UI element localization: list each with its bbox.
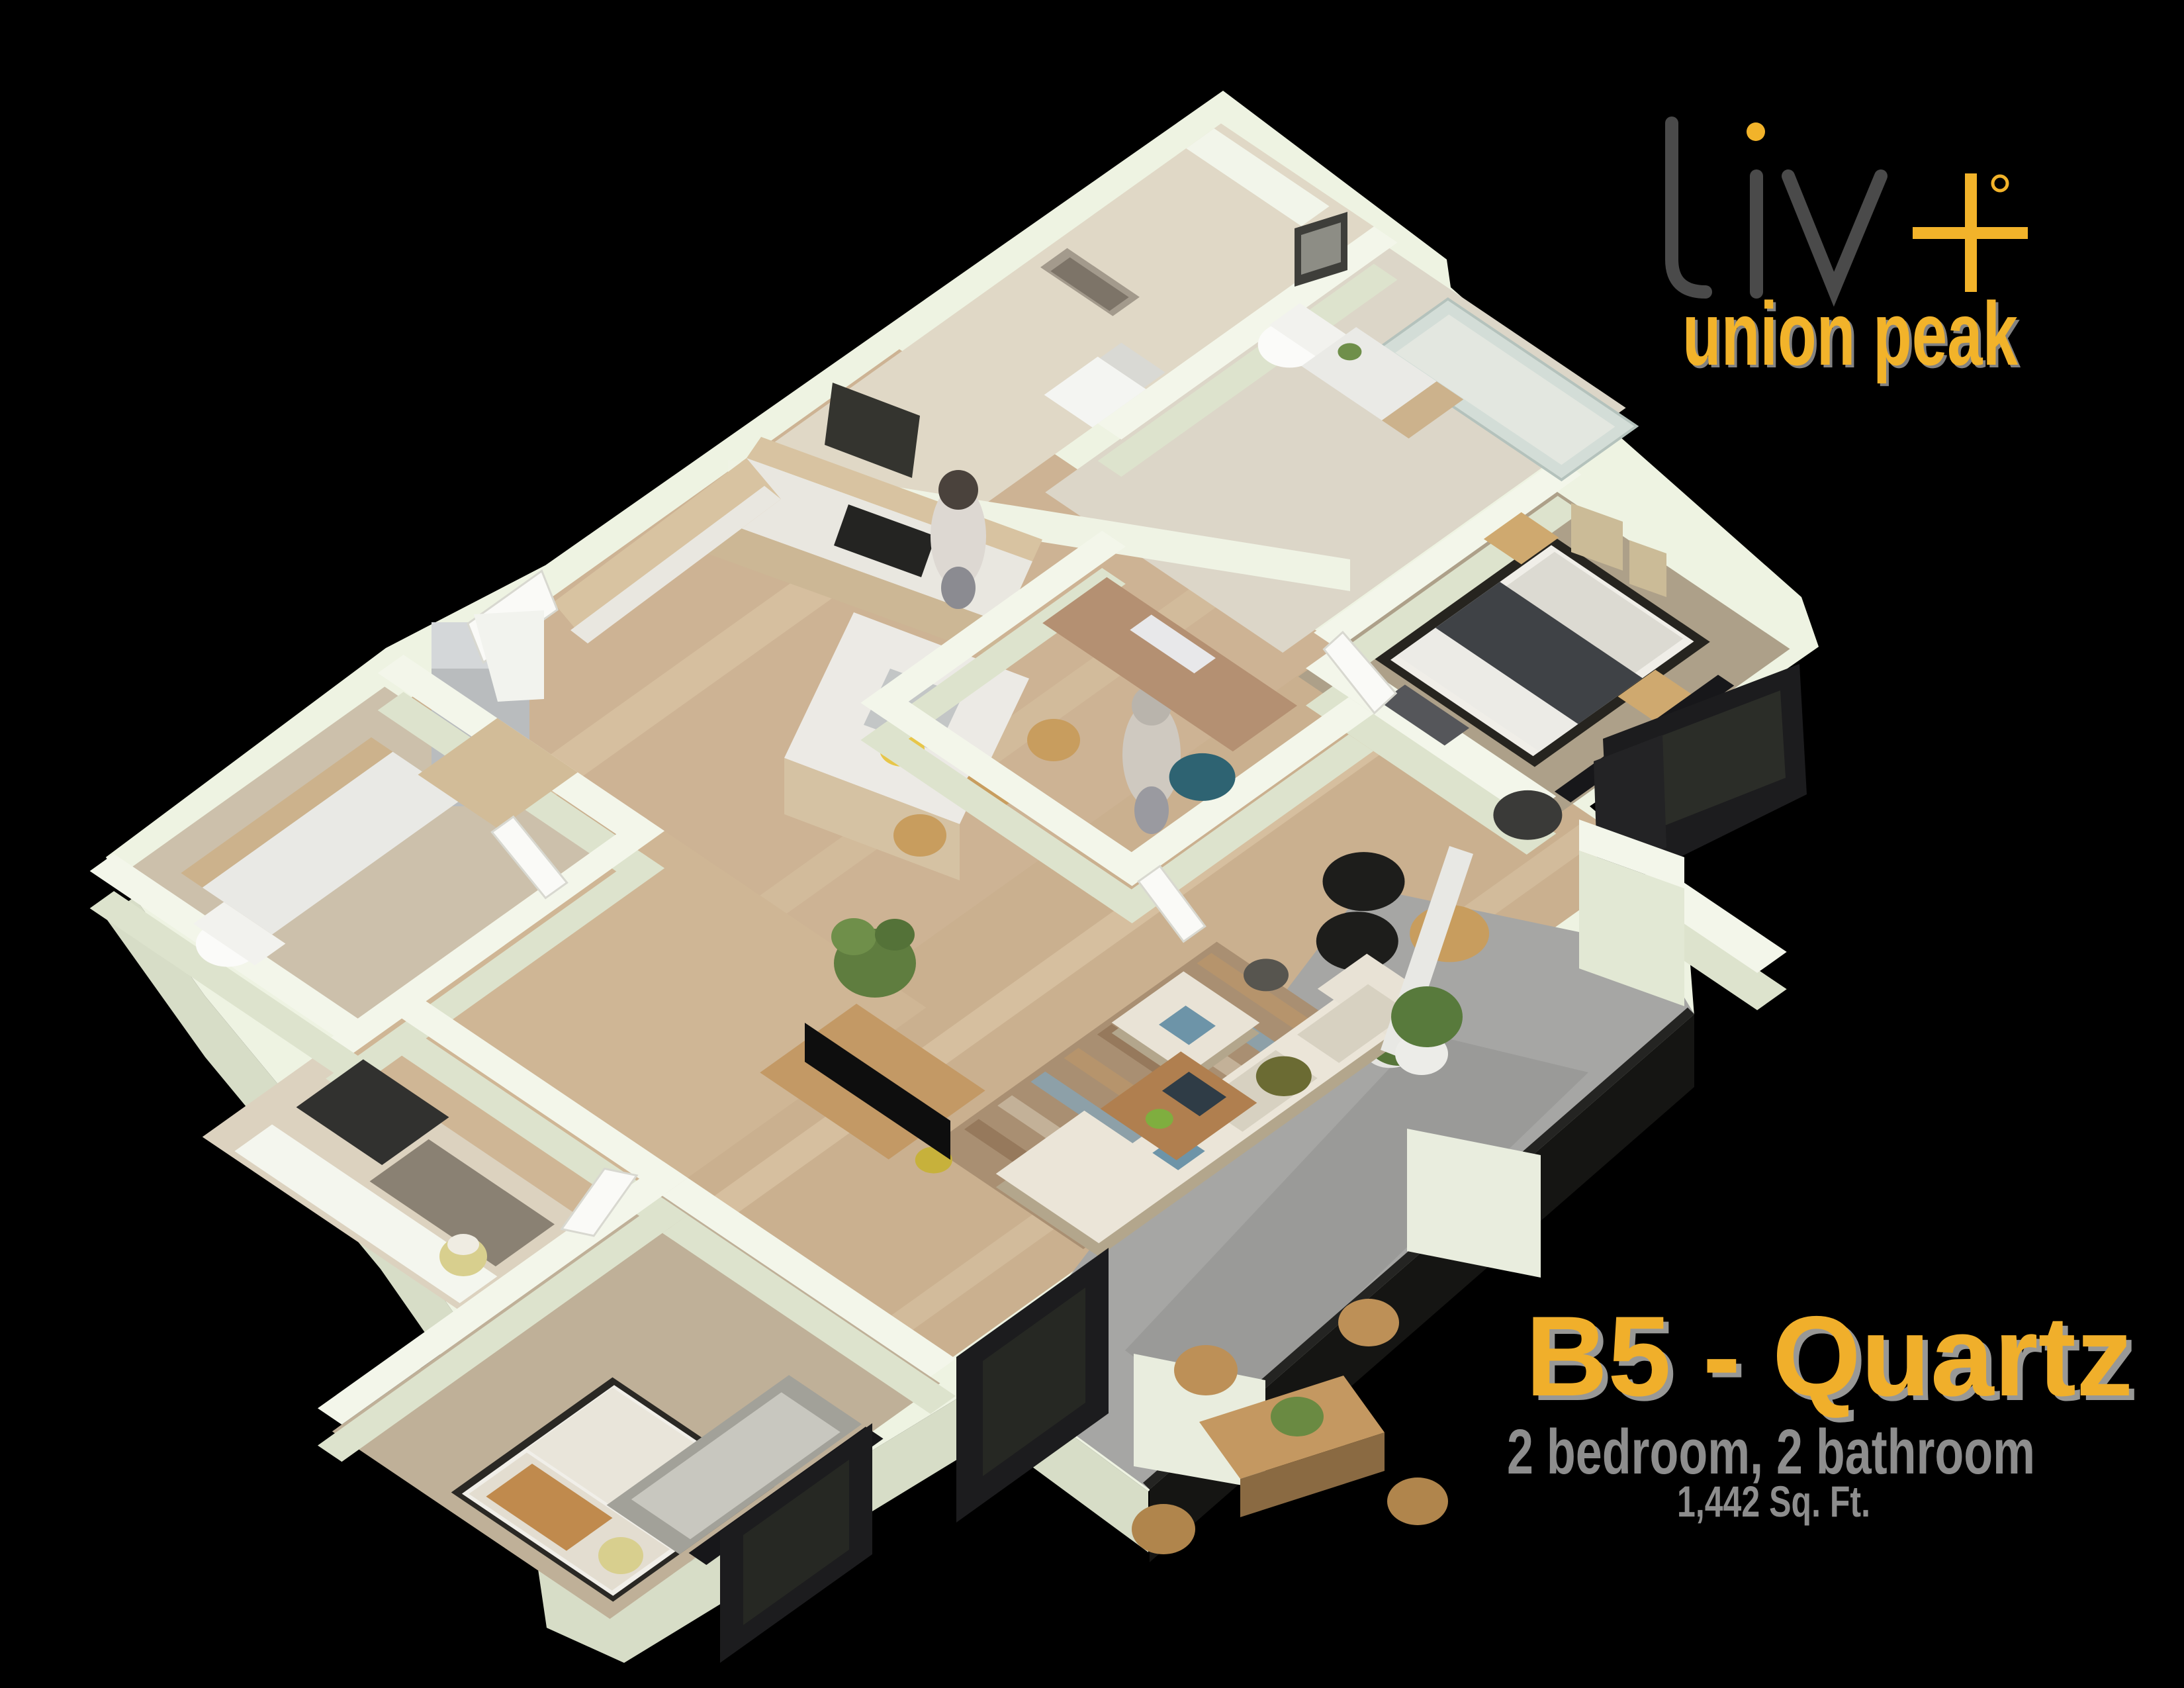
- svg-text:1,442 Sq. Ft.: 1,442 Sq. Ft.: [1677, 1477, 1870, 1526]
- svg-text:B5 - Quartz: B5 - Quartz: [1525, 1293, 2133, 1420]
- svg-text:union peak: union peak: [1682, 283, 2018, 384]
